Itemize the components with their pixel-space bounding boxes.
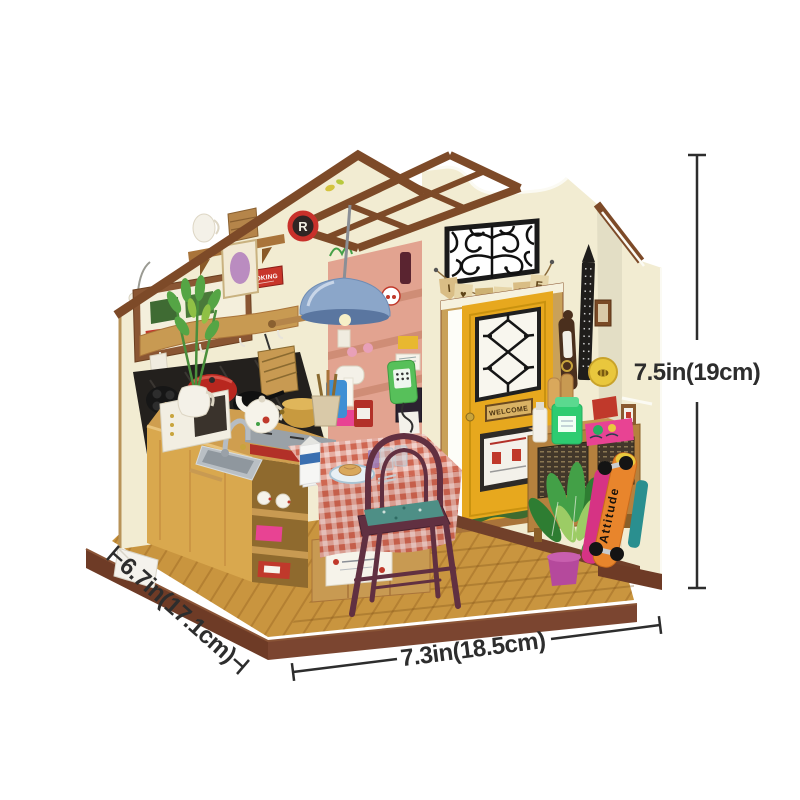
yellow-tag (398, 336, 418, 349)
small-picture-frame (595, 300, 611, 326)
height-dimension-label: 7.5in(19cm) (634, 359, 761, 386)
red-box (592, 396, 618, 420)
miniature-house-scene: COOKING (0, 0, 800, 800)
dim-cap (659, 616, 661, 634)
jug (193, 214, 215, 242)
mug (258, 492, 271, 505)
white-jug (178, 386, 210, 418)
door-handle (466, 413, 474, 421)
bee-sticker (589, 358, 617, 386)
white-bottle (533, 408, 547, 442)
small-frame (222, 240, 258, 298)
green-jar (552, 397, 582, 444)
croissant (339, 465, 361, 476)
wall-clock: R (290, 213, 316, 239)
scroll-grille (447, 221, 537, 283)
milk-carton-table (300, 436, 320, 485)
clock-letter: R (298, 219, 308, 234)
pink-shelf-unit (328, 240, 424, 455)
product-image: COOKING (0, 0, 800, 800)
chevron-board (258, 346, 298, 396)
wine-bottle (400, 252, 411, 284)
